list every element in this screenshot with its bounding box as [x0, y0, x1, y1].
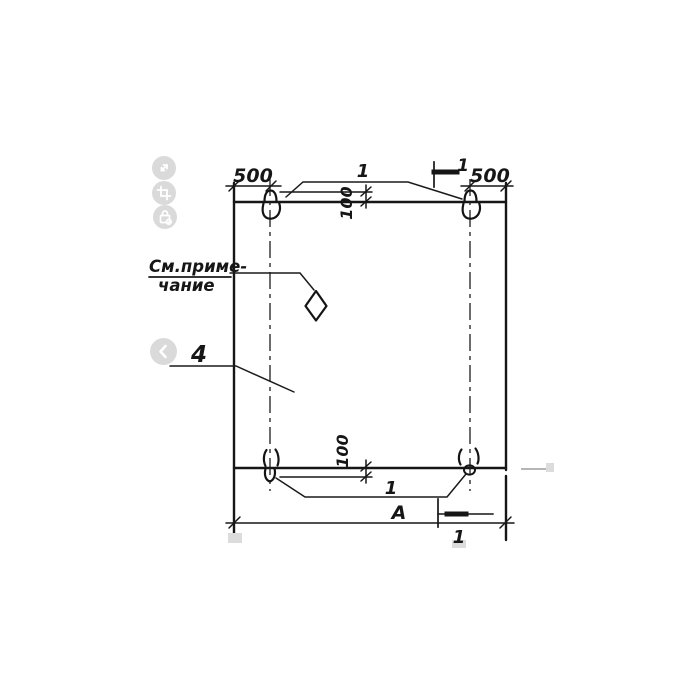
expand-button[interactable]	[152, 156, 176, 180]
note-line1: См.приме-	[149, 257, 247, 276]
dim-top-right-label: 500	[470, 165, 510, 187]
leader-lines	[149, 182, 466, 497]
panel-outline	[234, 183, 506, 540]
dim-top-left-label: 500	[233, 165, 273, 187]
note-line2: чание	[158, 276, 215, 295]
prev-icon	[150, 338, 177, 365]
overall-width-label: А	[390, 502, 407, 524]
callout-bottom-loops-label: 1	[385, 478, 398, 499]
crop-icon	[152, 181, 176, 205]
expand-icon	[152, 156, 176, 180]
dim-loop-bottom-label: 100	[333, 434, 352, 467]
loop-centre-lines	[270, 179, 470, 491]
section-bottom-label: 1	[453, 527, 466, 548]
section-mark-top	[434, 162, 457, 187]
part-number-label: 4	[190, 342, 207, 368]
note-diamond-symbol	[306, 291, 327, 321]
prev-button[interactable]	[150, 338, 177, 365]
lock-icon	[153, 205, 177, 229]
section-top-label: 1	[457, 156, 469, 176]
drawing-viewer: 500 500 1 100 1 См.приме- чание 4 100 1 …	[0, 0, 700, 700]
crop-button[interactable]	[152, 181, 176, 205]
technical-drawing: 500 500 1 100 1 См.приме- чание 4 100 1 …	[0, 0, 700, 700]
dim-loop-top-label: 100	[337, 186, 356, 219]
callout-top-loops-label: 1	[357, 161, 370, 182]
lifting-loops	[263, 191, 480, 482]
dimension-lines	[226, 181, 514, 528]
lock-button[interactable]	[153, 205, 177, 229]
